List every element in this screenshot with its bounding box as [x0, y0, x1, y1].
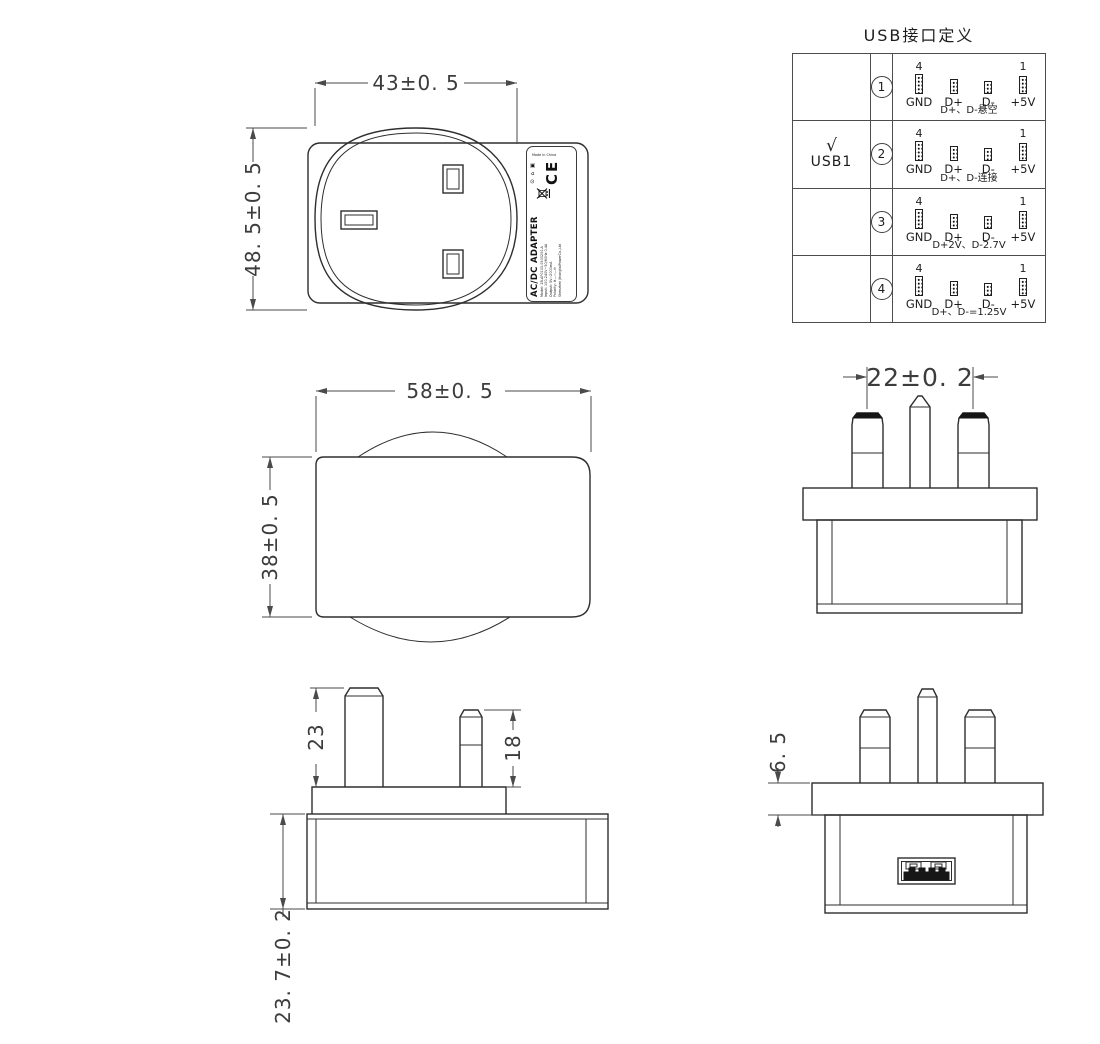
dim-earth-pin-length: 23	[304, 688, 344, 787]
top-flange	[803, 488, 1037, 520]
dplus-pin-icon	[950, 146, 958, 161]
earth-pin-side	[345, 688, 383, 787]
svg-text:22±0. 2: 22±0. 2	[866, 363, 973, 392]
v5-pin-icon	[1019, 211, 1027, 229]
dim-body-height: 23. 7±0. 2	[270, 814, 305, 1024]
earth-pin-front	[918, 689, 937, 783]
row-number-badge: 2	[871, 143, 893, 165]
dim-side-width: 58±0. 5	[316, 379, 591, 452]
safety-icons: ⊙ ⌂ ▣	[530, 162, 536, 184]
front-body	[825, 815, 1027, 913]
rear-face-oval-inner	[321, 133, 511, 305]
product-label: AC/DC ADAPTER Model: 2B-AP0100-0500200-A…	[526, 146, 577, 302]
label-title: AC/DC ADAPTER	[530, 201, 540, 297]
pin-slot-top	[443, 165, 463, 193]
dim-rear-height: 48. 5±0. 5	[241, 128, 307, 310]
pin-slot-bottom	[443, 250, 463, 278]
gnd-pin-icon	[915, 141, 923, 161]
product-label-content: AC/DC ADAPTER Model: 2B-AP0100-0500200-A…	[528, 150, 574, 300]
dim-side-height: 38±0. 5	[258, 457, 312, 617]
gnd-pin-icon	[915, 74, 923, 94]
svg-text:6. 5: 6. 5	[766, 731, 790, 773]
side-body-outline	[316, 457, 590, 617]
dminus-pin-icon	[984, 216, 992, 229]
v5-pin-icon	[1019, 143, 1027, 161]
usb-table-row-1: 1 4GND D+ D- 1+5V D+、D-悬空	[793, 54, 1045, 121]
pin-mode-note: D+、D-连接	[893, 169, 1045, 184]
usb-table-row-2: √ USB1 2 4GND D+ D- 1+5V D+、D-连接	[793, 121, 1045, 188]
dminus-pin-icon	[984, 283, 992, 296]
usb-definition-table: 1 4GND D+ D- 1+5V D+、D-悬空 √ USB1 2	[792, 53, 1046, 323]
row-number-badge: 4	[871, 278, 893, 300]
made-in-text: Made in China	[532, 153, 556, 157]
pin-mode-note: D+、D-=1.25V	[893, 303, 1045, 318]
neutral-pin-front	[965, 710, 995, 783]
side-face-arc-top	[358, 432, 507, 457]
dplus-pin-icon	[950, 214, 958, 229]
front-flange	[812, 783, 1043, 815]
usb-table-title: USB接口定义	[792, 22, 1046, 46]
live-pin-front	[860, 710, 890, 783]
pin-mode-note: D+2V、D-2.7V	[893, 236, 1045, 251]
side-body-lower	[307, 814, 608, 909]
gnd-pin-icon	[915, 276, 923, 296]
usb-port	[898, 858, 955, 884]
label-polarity-line: Polarity: ⊕—⎓—⊖	[553, 201, 557, 297]
row-number-badge: 1	[871, 76, 893, 98]
side-view: 58±0. 5 38±0. 5	[258, 379, 591, 642]
pin-slot-left	[341, 211, 377, 229]
svg-text:23: 23	[304, 723, 328, 750]
front-usb-view: 6. 5	[766, 689, 1043, 913]
dplus-pin-icon	[950, 79, 958, 94]
svg-text:43±0. 5: 43±0. 5	[372, 71, 459, 95]
weee-bin-icon	[536, 188, 550, 199]
top-body	[817, 520, 1022, 613]
usb-table-row-4: 4 4GND D+ D- 1+5V D+、D-=1.25V	[793, 256, 1045, 322]
dim-pin-spacing: 22±0. 2	[843, 363, 998, 409]
svg-text:23. 7±0. 2: 23. 7±0. 2	[271, 908, 295, 1024]
ce-mark: CE	[543, 160, 561, 185]
dim-power-pin-length: 18	[484, 710, 525, 787]
top-view: 22±0. 2	[803, 363, 1037, 613]
neutral-pin	[958, 413, 989, 488]
power-pin-side	[460, 710, 482, 787]
v5-pin-icon	[1019, 76, 1027, 94]
svg-text:48. 5±0. 5: 48. 5±0. 5	[241, 161, 265, 277]
earth-pin	[910, 396, 930, 488]
row2-port: USB1	[811, 154, 853, 170]
dminus-pin-icon	[984, 148, 992, 161]
label-company: Shenzhen JihongtaiPowerCo.,Ltd	[558, 201, 562, 297]
row-number-badge: 3	[871, 211, 893, 233]
engineering-drawing-canvas: 43±0. 5 48. 5±0. 5	[0, 0, 1100, 1044]
side-pins-view: 23 18 23. 7±0. 2	[270, 688, 608, 1024]
gnd-pin-icon	[915, 209, 923, 229]
usb-table-row-3: 3 4GND D+ D- 1+5V D+2V、D-2.7V	[793, 189, 1045, 256]
dminus-pin-icon	[984, 81, 992, 94]
dplus-pin-icon	[950, 281, 958, 296]
live-pin	[852, 413, 883, 488]
v5-pin-icon	[1019, 278, 1027, 296]
side-plinth	[312, 787, 506, 814]
pin-mode-note: D+、D-悬空	[893, 101, 1045, 116]
svg-text:58±0. 5: 58±0. 5	[406, 379, 493, 403]
svg-text:38±0. 5: 38±0. 5	[258, 493, 282, 580]
dim-flange-thickness: 6. 5	[766, 731, 824, 827]
row2-check: √	[826, 138, 837, 154]
side-face-arc-bottom	[350, 617, 510, 642]
svg-text:18: 18	[501, 734, 525, 761]
